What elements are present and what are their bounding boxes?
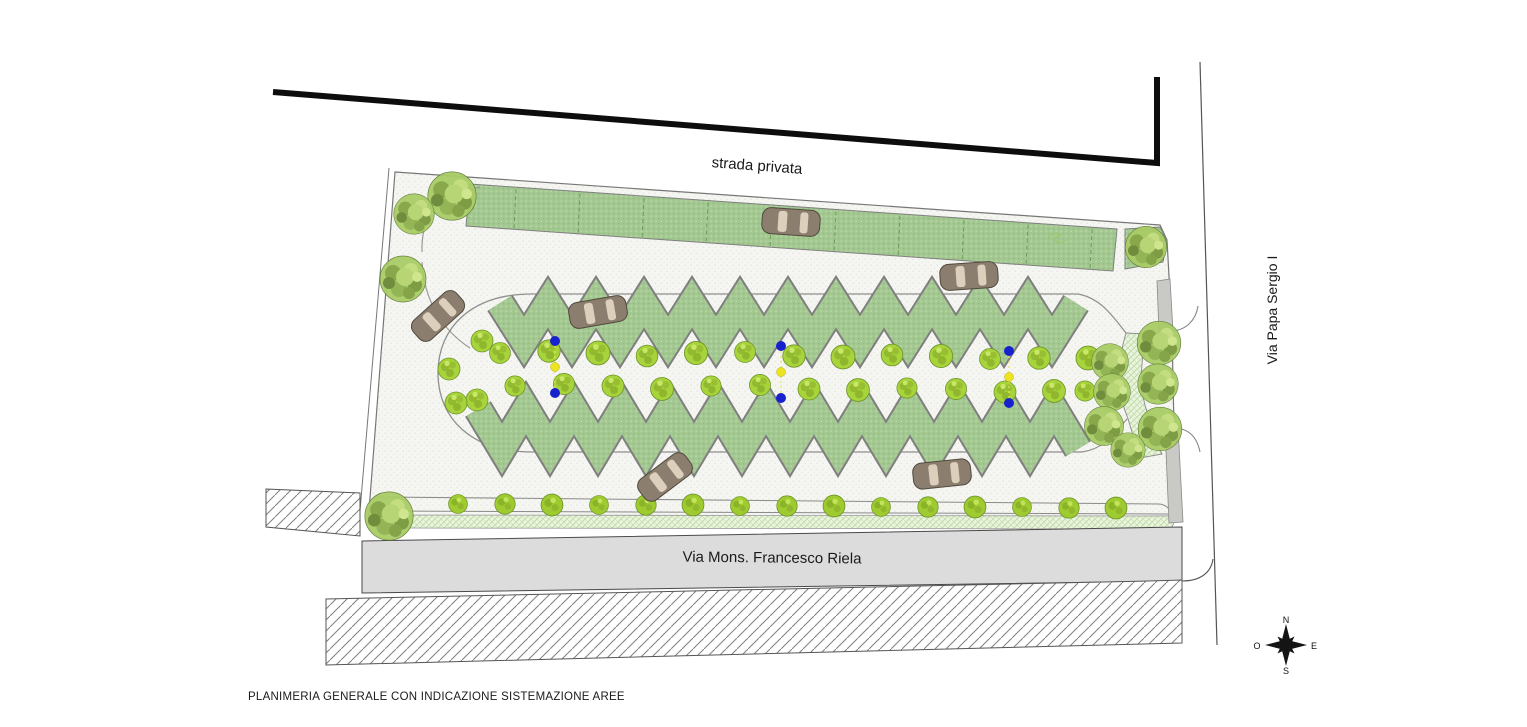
drawing-caption: PLANIMERIA GENERALE CON INDICAZIONE SIST… bbox=[248, 691, 625, 703]
tree bbox=[831, 345, 855, 369]
tree bbox=[445, 392, 467, 414]
tree bbox=[651, 378, 674, 401]
bigtree bbox=[428, 172, 476, 220]
bigtree bbox=[1137, 321, 1181, 365]
bigtree bbox=[365, 492, 413, 540]
compass-north-label: N bbox=[1283, 615, 1290, 625]
bush bbox=[495, 494, 515, 514]
site-plan-canvas: strada privata Via Papa Sergio I Via Mon… bbox=[0, 0, 1527, 727]
tree bbox=[438, 358, 460, 380]
road-label-via-papa-sergio: Via Papa Sergio I bbox=[1264, 256, 1280, 365]
tree bbox=[636, 345, 658, 367]
bush bbox=[1105, 497, 1127, 519]
bush bbox=[872, 498, 891, 517]
bush bbox=[541, 494, 563, 516]
tree bbox=[847, 379, 870, 402]
compass-south-label: S bbox=[1283, 666, 1289, 676]
tree bbox=[798, 378, 820, 400]
tree bbox=[980, 349, 1001, 370]
bush bbox=[918, 497, 938, 517]
tree bbox=[471, 330, 493, 352]
compass-east-label: E bbox=[1311, 641, 1317, 651]
tree bbox=[1043, 380, 1066, 403]
strada-privata-edge bbox=[273, 77, 1157, 163]
bush bbox=[682, 494, 704, 516]
tree bbox=[1028, 347, 1050, 369]
tree bbox=[505, 376, 525, 396]
tree bbox=[881, 344, 903, 366]
road-corner-fillet bbox=[1182, 559, 1213, 581]
bigtree bbox=[1094, 374, 1131, 411]
bigtree bbox=[1138, 407, 1182, 451]
tree bbox=[735, 342, 756, 363]
bigtree bbox=[1111, 433, 1146, 468]
car bbox=[939, 261, 999, 291]
tree bbox=[490, 343, 511, 364]
tree bbox=[897, 378, 917, 398]
tree bbox=[945, 378, 966, 399]
bush bbox=[731, 497, 750, 516]
bigtree bbox=[380, 256, 426, 302]
tree bbox=[602, 375, 624, 397]
car bbox=[912, 458, 972, 490]
site-plan-drawing bbox=[0, 0, 1527, 727]
via-papa-road-edge bbox=[1200, 62, 1217, 645]
green-verge-strip bbox=[380, 515, 1175, 529]
tree bbox=[929, 344, 952, 367]
bush bbox=[449, 495, 468, 514]
bush bbox=[823, 495, 845, 517]
bush bbox=[1013, 498, 1032, 517]
bush bbox=[964, 496, 986, 518]
bigtree bbox=[1125, 226, 1166, 267]
compass-rose bbox=[1265, 624, 1307, 666]
tree bbox=[684, 341, 707, 364]
road-label-via-mons-francesco-riela: Via Mons. Francesco Riela bbox=[682, 549, 861, 568]
compass-west-label: O bbox=[1253, 641, 1260, 651]
bush bbox=[777, 496, 797, 516]
bigtree bbox=[394, 194, 434, 234]
bigtree bbox=[1138, 364, 1178, 404]
tree bbox=[783, 345, 805, 367]
car bbox=[761, 207, 821, 237]
tree bbox=[749, 374, 770, 395]
hatched-area-west bbox=[266, 489, 360, 536]
tree bbox=[701, 376, 721, 396]
tree bbox=[586, 341, 610, 365]
tree bbox=[1075, 381, 1095, 401]
bush bbox=[1059, 498, 1079, 518]
bush bbox=[590, 496, 609, 515]
hatched-area-south bbox=[326, 580, 1182, 665]
tree bbox=[466, 389, 488, 411]
